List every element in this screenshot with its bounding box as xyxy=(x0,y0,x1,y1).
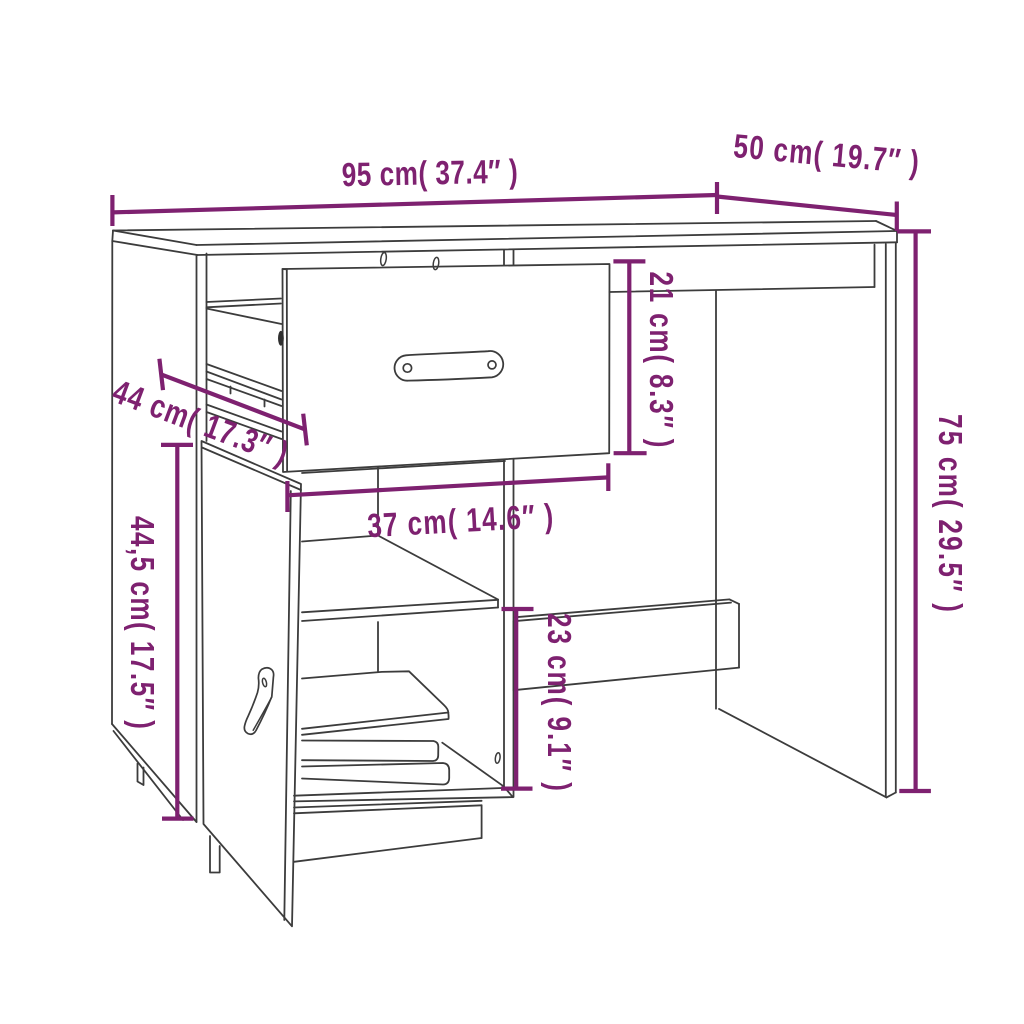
svg-text:23 cm( 9.1″ ): 23 cm( 9.1″ ) xyxy=(540,613,577,791)
svg-text:75 cm( 29.5″ ): 75 cm( 29.5″ ) xyxy=(931,414,968,612)
svg-text:21 cm( 8.3″ ): 21 cm( 8.3″ ) xyxy=(642,272,679,448)
svg-text:44,5 cm( 17.5″ ): 44,5 cm( 17.5″ ) xyxy=(123,516,160,729)
svg-text:95 cm( 37.4″ ): 95 cm( 37.4″ ) xyxy=(341,154,518,194)
